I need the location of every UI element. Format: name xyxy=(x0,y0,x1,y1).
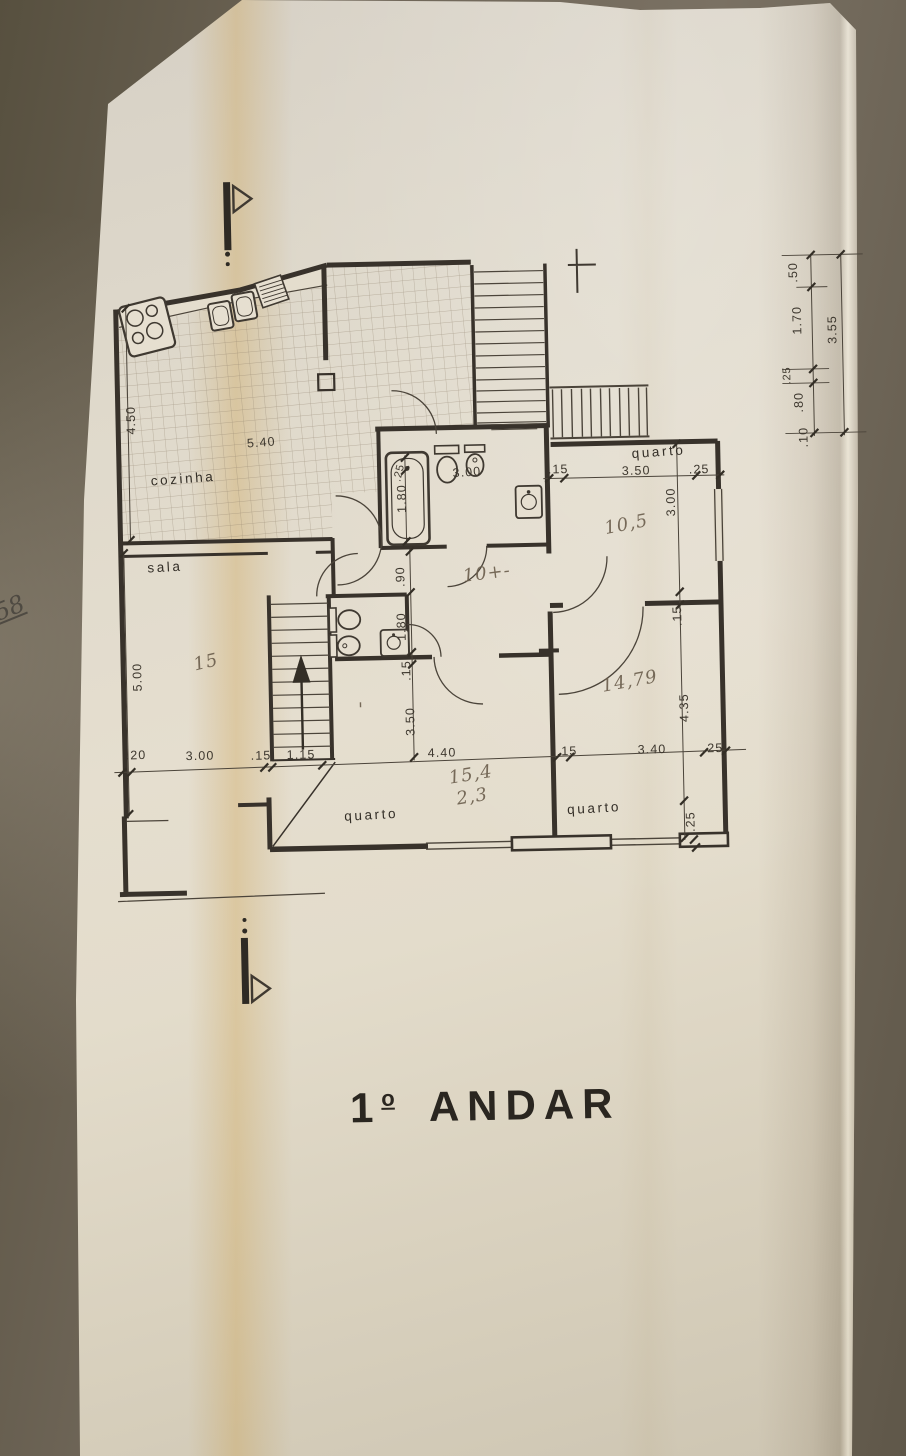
label-540: 5.40 xyxy=(246,434,276,450)
bottom-windows xyxy=(426,833,728,852)
label-15: .15 xyxy=(251,748,272,762)
label-10: .10 xyxy=(796,427,810,448)
wall-end-mark xyxy=(568,248,597,293)
label-25: .25 xyxy=(683,811,697,832)
label-15: .15 xyxy=(557,744,578,758)
label-25: .25 xyxy=(689,462,710,476)
label-quarto: quarto xyxy=(567,799,622,817)
label-500: 5.00 xyxy=(130,663,145,692)
stair-direction-arrow xyxy=(301,679,302,750)
label-23: 2,3 xyxy=(454,784,490,810)
label-180: 1.80 xyxy=(394,612,409,641)
label-300: 3.00 xyxy=(186,749,215,764)
label-quarto: quarto xyxy=(344,806,399,824)
label-450: 4.50 xyxy=(124,406,139,435)
label-170: 1.70 xyxy=(790,306,805,335)
bathroom-sink-icon xyxy=(515,486,542,519)
label-sala: sala xyxy=(147,559,183,576)
interior-stair xyxy=(271,603,331,750)
section-marker-bottom xyxy=(240,917,270,1004)
section-marker-top xyxy=(223,182,253,267)
right-wall-window xyxy=(713,489,726,561)
floor-word: ANDAR xyxy=(428,1080,620,1130)
label-15: .15 xyxy=(399,660,413,681)
label-340: 3.40 xyxy=(638,742,667,757)
photo-of-floor-plan: { "title": {"number": "1", "ordinal": "o… xyxy=(0,0,906,1456)
label-105: 10,5 xyxy=(603,510,650,539)
wc-toilet-icon xyxy=(329,607,360,632)
label-25: .25 xyxy=(703,741,724,755)
label-15: .15 xyxy=(670,605,684,626)
floor-plan-drawing: 4.505.40cozinhasala5.0015.251.803.00.15q… xyxy=(0,0,906,1456)
label-50: .50 xyxy=(786,262,800,283)
label-154: 15,4 xyxy=(447,761,494,789)
floor-number: 1 xyxy=(350,1084,382,1132)
label-quarto: quarto xyxy=(631,442,686,461)
label-15: 15 xyxy=(191,649,220,675)
label-25: .25 xyxy=(781,367,793,385)
wc-bidet-icon xyxy=(330,634,360,657)
label-440: 4.40 xyxy=(428,745,457,760)
label-350: 3.50 xyxy=(403,707,418,736)
drawing-title: 1oANDAR xyxy=(350,1080,621,1133)
label-435: 4.35 xyxy=(677,693,692,722)
label-1479: 14,79 xyxy=(600,666,659,697)
label-: ' xyxy=(358,699,364,720)
label-20: .20 xyxy=(126,748,147,762)
label-80: .80 xyxy=(792,392,806,413)
label-300: 3.00 xyxy=(452,464,482,480)
label-350: 3.50 xyxy=(622,463,651,478)
ordinal-mark: o xyxy=(381,1086,395,1111)
label-15: .15 xyxy=(548,462,569,476)
label-180: 1.80 xyxy=(394,484,409,513)
label-300: 3.00 xyxy=(664,487,679,516)
label-115: 1.15 xyxy=(287,747,316,762)
label-90: .90 xyxy=(393,566,407,587)
exterior-stair xyxy=(474,271,546,423)
label-10: 10+- xyxy=(462,560,512,587)
balcony-railing xyxy=(549,385,649,438)
label-355: 3.55 xyxy=(825,315,840,344)
